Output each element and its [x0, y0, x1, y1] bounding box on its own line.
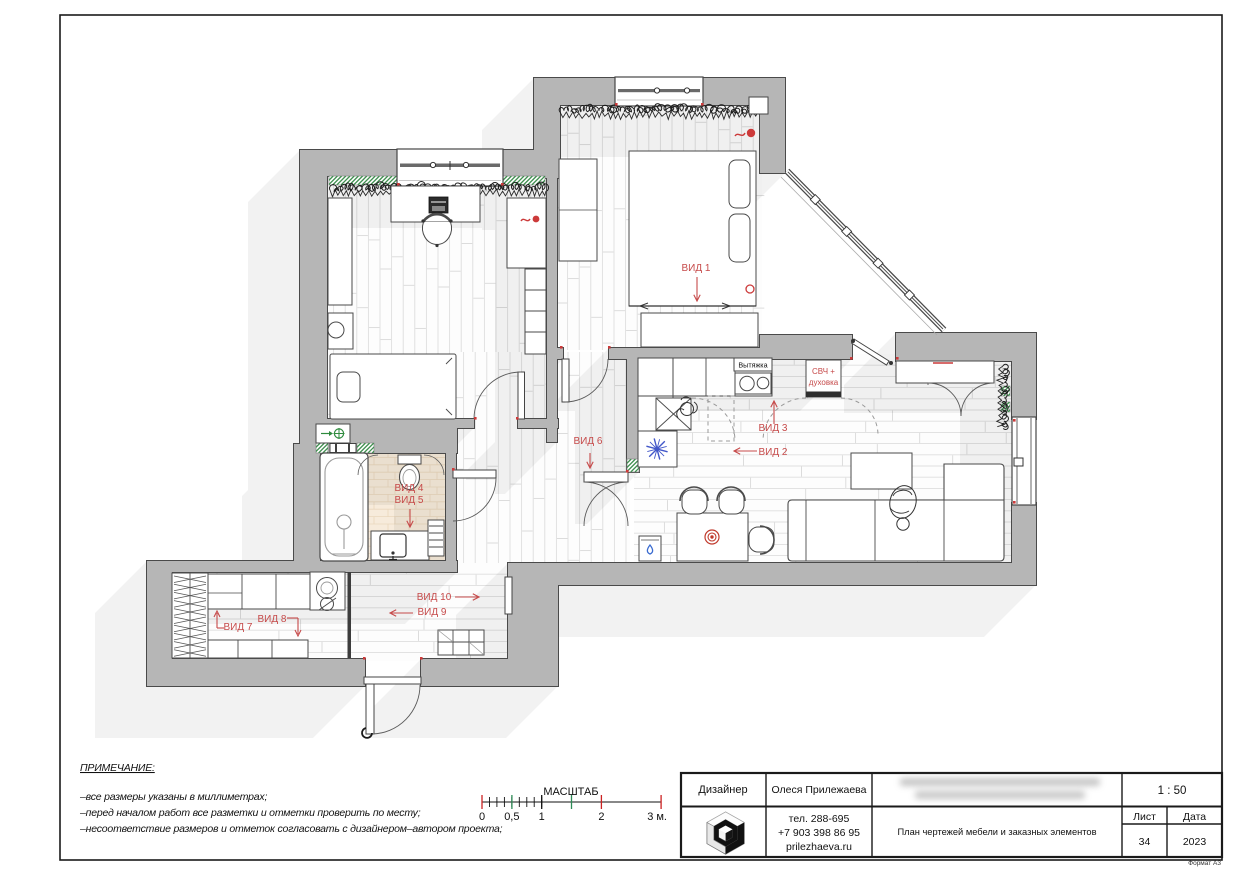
svg-text:ВИД 3: ВИД 3	[759, 423, 788, 434]
svg-text:Вытяжка: Вытяжка	[738, 361, 767, 370]
svg-text:ВИД 2: ВИД 2	[759, 447, 788, 458]
svg-text:0,5: 0,5	[504, 811, 519, 823]
svg-text:План чертежей мебели и заказны: План чертежей мебели и заказных элементо…	[897, 827, 1096, 837]
svg-text:духовка: духовка	[809, 378, 839, 387]
svg-text:Формат А3: Формат А3	[1188, 860, 1221, 867]
svg-text:1 : 50: 1 : 50	[1158, 785, 1187, 797]
svg-text:Дизайнер: Дизайнер	[698, 784, 747, 796]
svg-text:Лист: Лист	[1133, 811, 1156, 823]
svg-text:Олеся Прилежаева: Олеся Прилежаева	[772, 784, 867, 796]
svg-text:ВИД 4: ВИД 4	[395, 483, 424, 494]
svg-text:3 м.: 3 м.	[647, 811, 667, 823]
svg-text:ВИД 10: ВИД 10	[417, 592, 452, 603]
svg-text:2023: 2023	[1183, 836, 1207, 848]
svg-text:ВИД 5: ВИД 5	[395, 495, 424, 506]
svg-text:–несоответствие размеров и отм: –несоответствие размеров и отметок согла…	[79, 823, 503, 835]
svg-text:0: 0	[479, 811, 485, 823]
svg-text:ВИД 8: ВИД 8	[258, 614, 287, 625]
svg-text:ВИД 7: ВИД 7	[224, 622, 253, 633]
svg-text:34: 34	[1139, 836, 1151, 848]
svg-text:prilezhaeva.ru: prilezhaeva.ru	[786, 841, 852, 853]
svg-text:ВИД 9: ВИД 9	[418, 607, 447, 618]
svg-text:2: 2	[598, 811, 604, 823]
svg-text:СВЧ +: СВЧ +	[812, 367, 835, 376]
svg-text:1: 1	[539, 811, 545, 823]
svg-text:+7 903 398 86 95: +7 903 398 86 95	[778, 827, 860, 839]
svg-text:–все размеры указаны в миллиме: –все размеры указаны в миллиметрах;	[79, 791, 267, 803]
svg-text:ВИД 6: ВИД 6	[574, 436, 603, 447]
svg-text:Дата: Дата	[1183, 811, 1206, 823]
svg-text:ВИД 1: ВИД 1	[682, 263, 711, 274]
svg-text:ПРИМЕЧАНИЕ:: ПРИМЕЧАНИЕ:	[80, 762, 155, 774]
svg-text:–перед началом работ все разме: –перед началом работ все разметки и отме…	[79, 807, 421, 819]
svg-text:тел. 288-695: тел. 288-695	[789, 813, 850, 825]
